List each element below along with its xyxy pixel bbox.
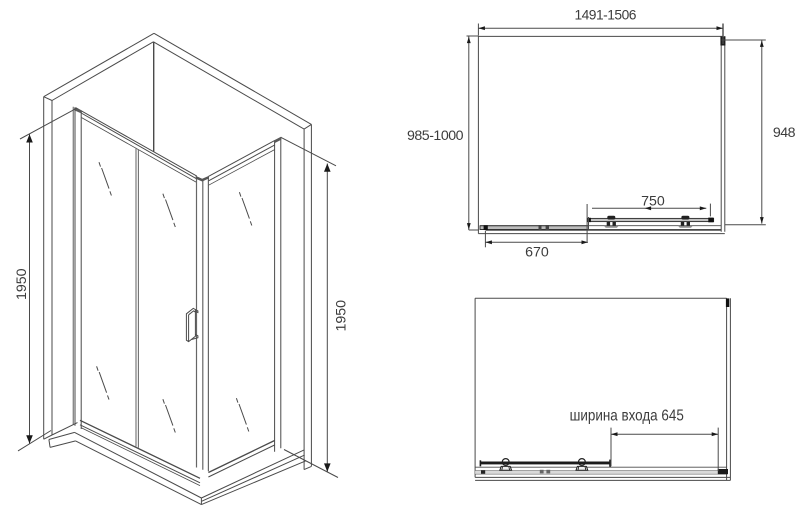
svg-text:1950: 1950 <box>14 268 30 300</box>
svg-text:670: 670 <box>525 245 549 261</box>
svg-text:948: 948 <box>773 125 796 141</box>
svg-text:1491-1506: 1491-1506 <box>574 8 636 23</box>
svg-text:1950: 1950 <box>333 300 349 332</box>
svg-text:985-1000: 985-1000 <box>407 128 464 144</box>
svg-text:750: 750 <box>641 193 665 209</box>
svg-text:ширина входа 645: ширина входа 645 <box>570 408 684 425</box>
